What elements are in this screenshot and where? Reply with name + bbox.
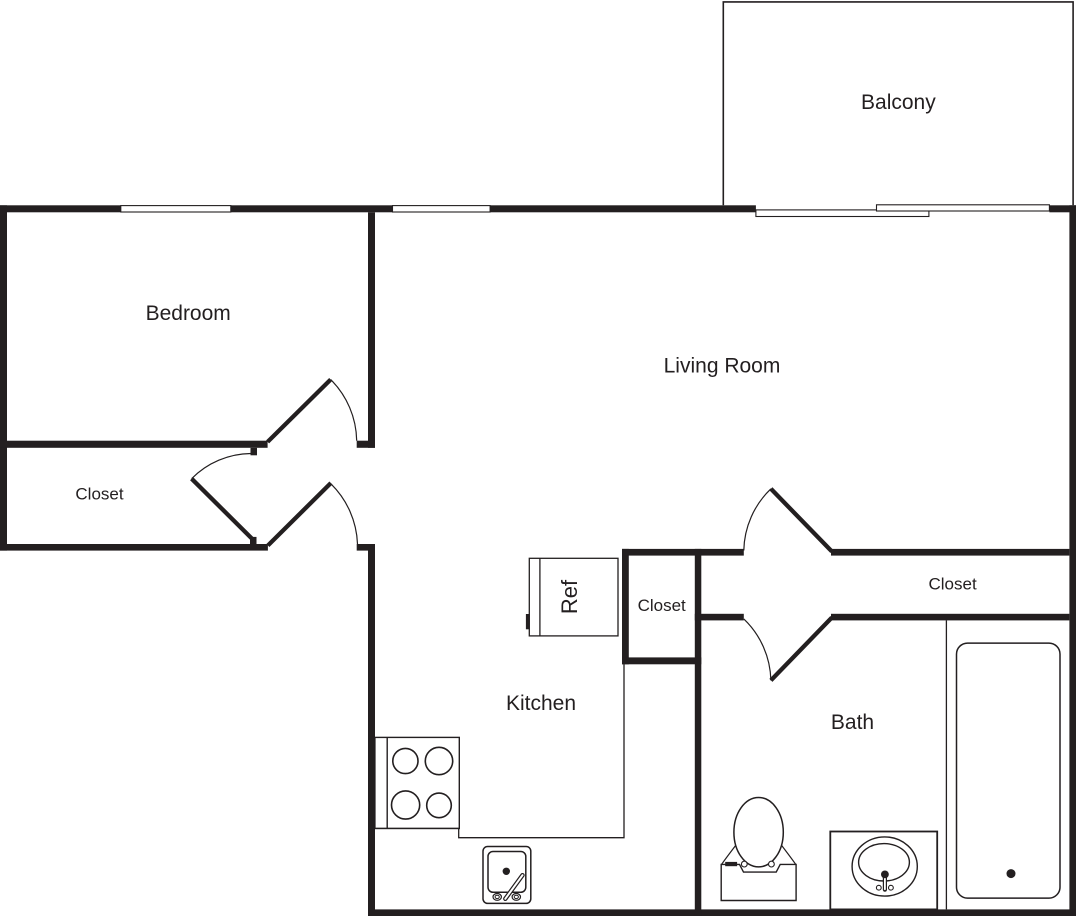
svg-text:Bath: Bath bbox=[831, 711, 874, 734]
svg-text:Ref: Ref bbox=[557, 579, 582, 614]
svg-text:Living Room: Living Room bbox=[664, 355, 781, 378]
svg-text:Closet: Closet bbox=[929, 575, 977, 594]
svg-text:Closet: Closet bbox=[75, 484, 123, 503]
svg-text:Bedroom: Bedroom bbox=[146, 302, 231, 325]
svg-text:Balcony: Balcony bbox=[861, 91, 936, 114]
svg-text:Closet: Closet bbox=[638, 596, 686, 615]
svg-text:Kitchen: Kitchen bbox=[506, 692, 576, 715]
